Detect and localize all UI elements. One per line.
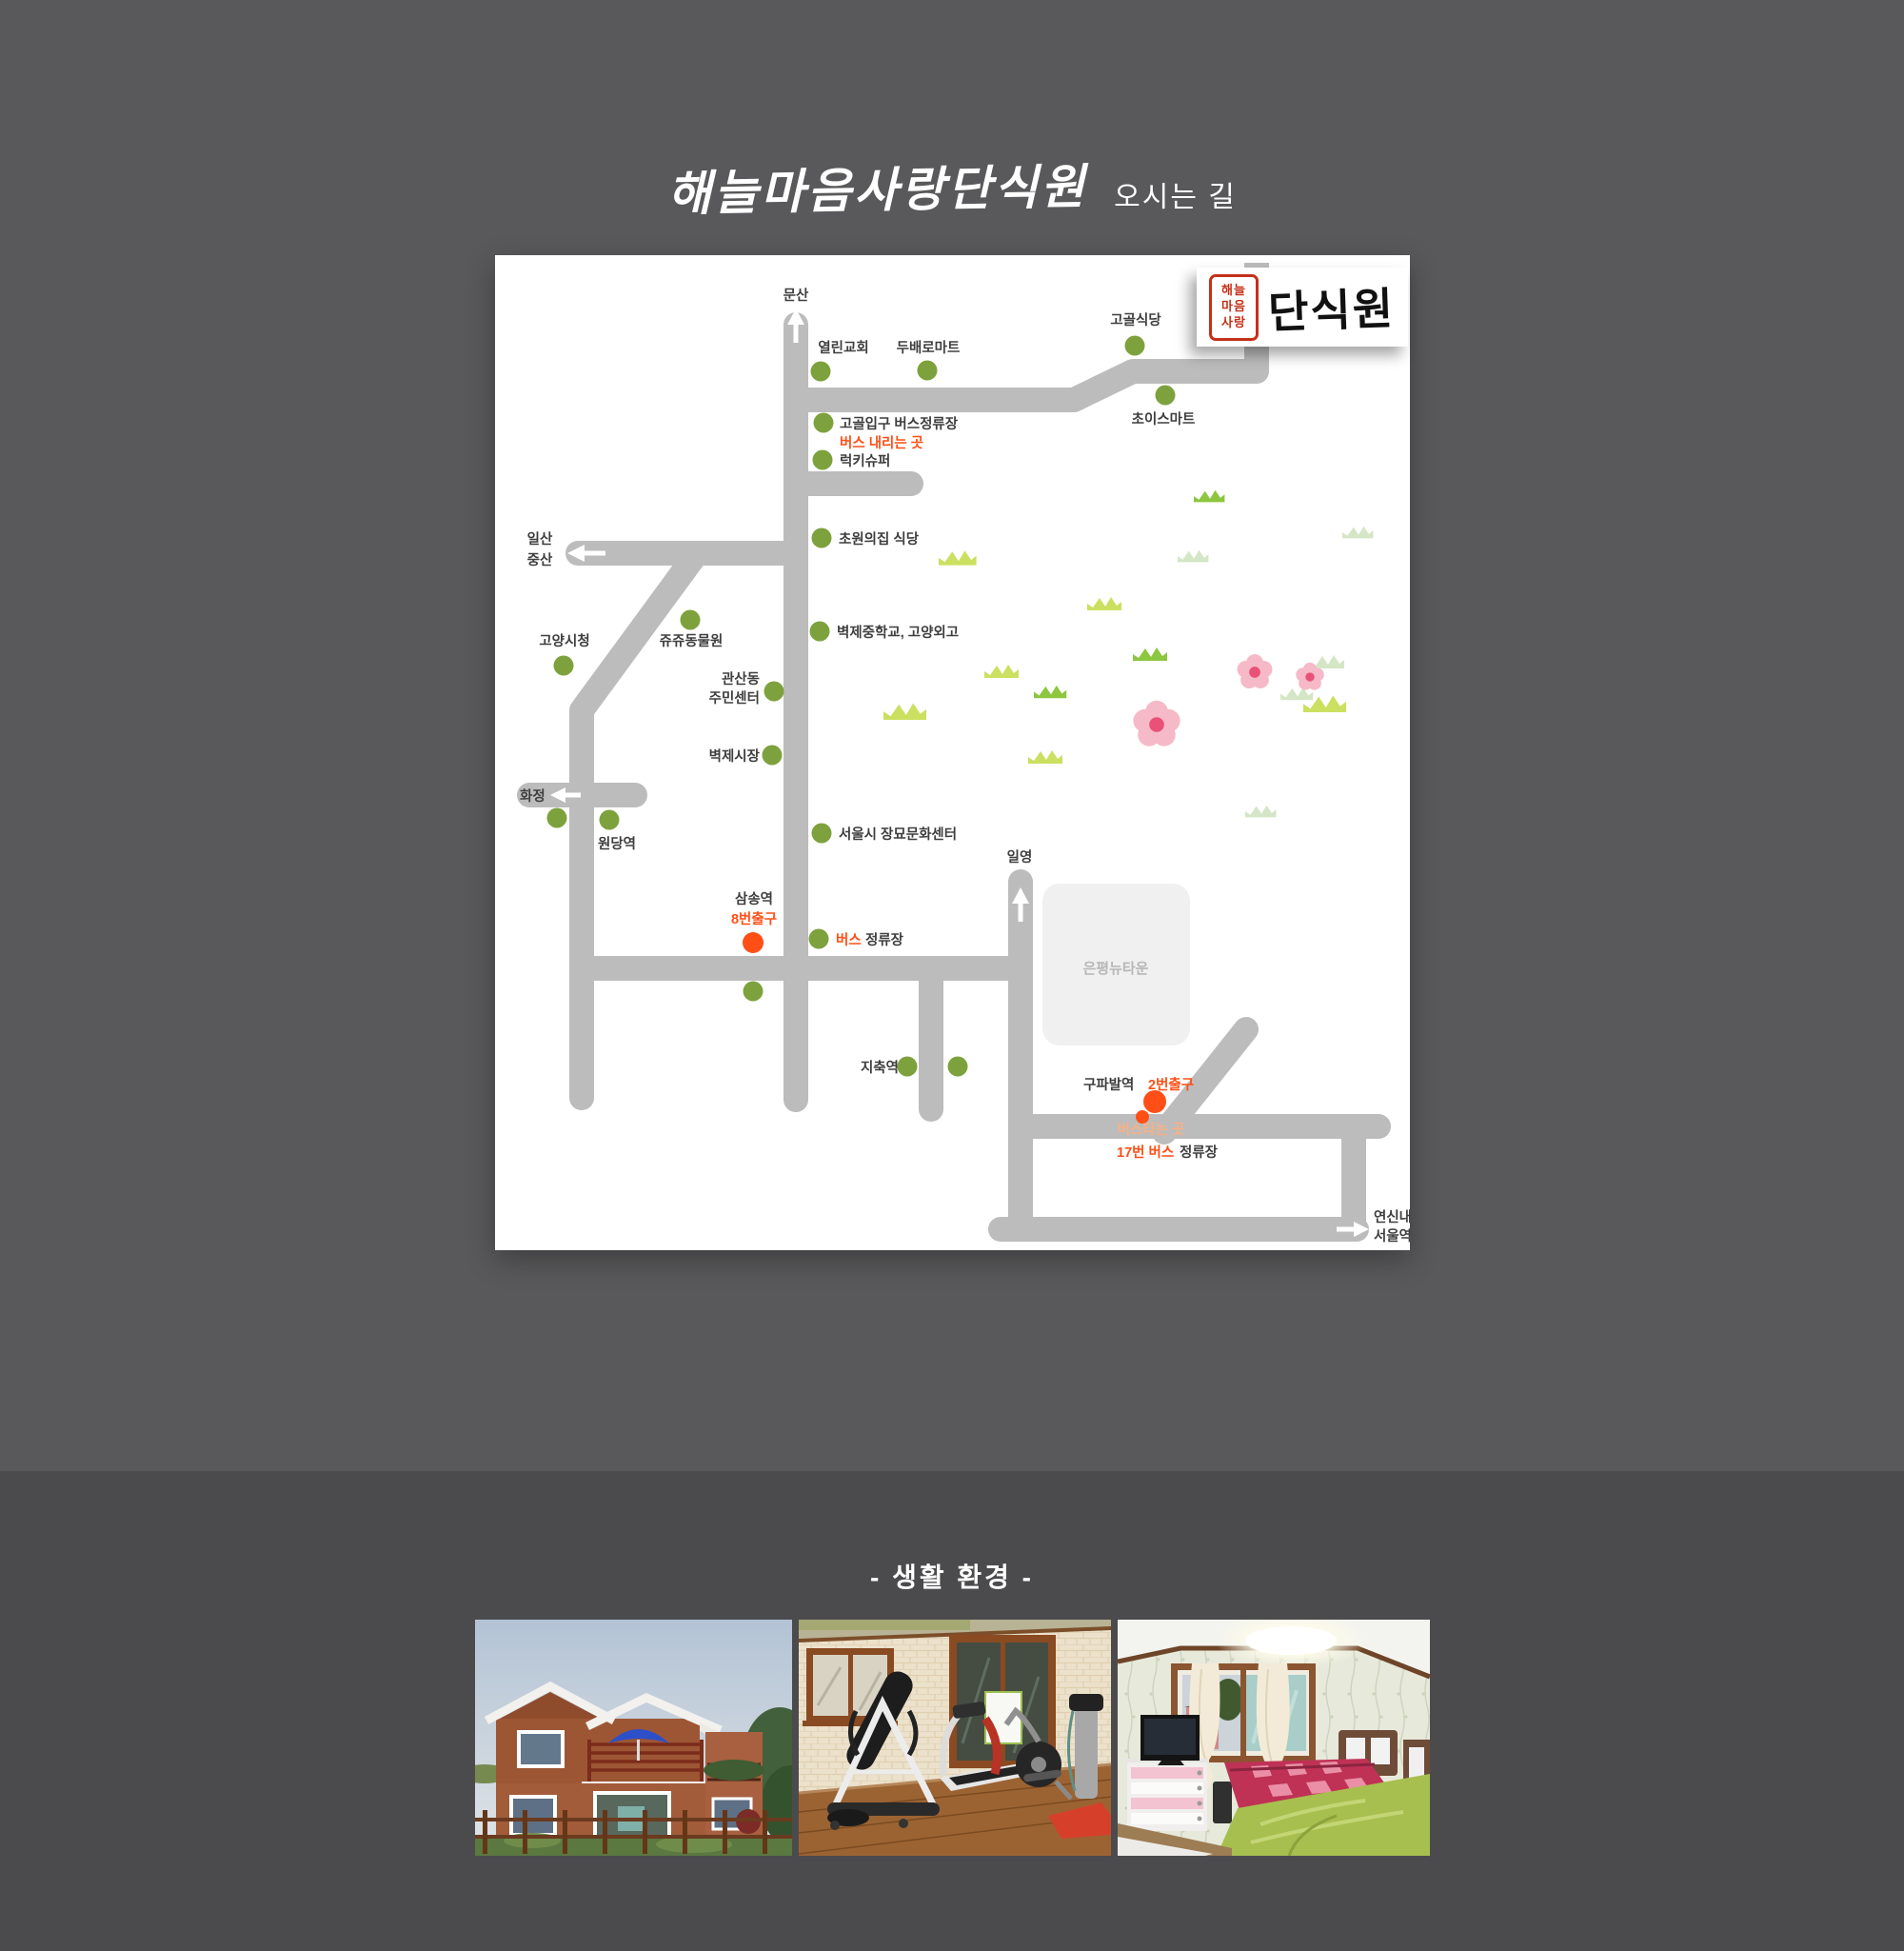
- map-label-munsan: 문산: [783, 288, 808, 304]
- marker-goyang-cityhall: [553, 656, 573, 676]
- directions-map: 은평뉴타운: [495, 255, 1410, 1250]
- map-canvas: 은평뉴타운: [495, 255, 1410, 1250]
- map-label-gupabal-station: 구파발역: [1083, 1077, 1134, 1093]
- map-label-lucky-super: 럭키슈퍼: [840, 452, 890, 469]
- grass-icon: [1194, 490, 1224, 503]
- map-label-jichuk-station: 지축역: [860, 1060, 898, 1076]
- map-label-hwajeong: 화정: [520, 787, 545, 805]
- map-label-bus-board: 버스타는 곳: [1117, 1122, 1184, 1138]
- marker-unlabeled: [743, 982, 763, 1002]
- heater: [1213, 1782, 1232, 1823]
- site-name-calligraphy: 해늘마음사랑단식원: [667, 149, 1088, 225]
- marker-yeollin-church: [810, 362, 830, 382]
- marker-hwajeong: [546, 808, 566, 828]
- map-label-eunpyeong-newtown: 은평뉴타운: [1082, 960, 1148, 977]
- map-label-yeonsinnae: 연신내: [1374, 1209, 1410, 1225]
- map-label-bus17: 17번 버스: [1117, 1145, 1174, 1161]
- seal-line-3: 사랑: [1221, 315, 1246, 331]
- marker-jichuk-left: [897, 1057, 917, 1077]
- map-label-bus-alight: 버스 내리는 곳: [840, 435, 923, 451]
- marker-gwansandong-center: [764, 682, 783, 702]
- map-label-juju-zoo: 쥬쥬동물원: [659, 633, 723, 649]
- grass-icon: [939, 550, 977, 565]
- map-label-bus-word: 버스: [836, 932, 862, 948]
- map-label-jeongryujang: 정류장: [865, 931, 904, 948]
- seal-line-2: 마음: [1221, 299, 1246, 315]
- map-label-jungsan: 중산: [526, 552, 552, 568]
- seal-line-1: 해늘: [1221, 283, 1246, 299]
- marker-jichuk-right: [947, 1057, 967, 1077]
- map-label-jeongryujang2: 정류장: [1180, 1144, 1219, 1161]
- marker-juju-zoo: [680, 610, 700, 630]
- section-title: - 생활 환경 -: [0, 1471, 1904, 1595]
- page-title: 해늘마음사랑단식원 오시는 길: [0, 0, 1904, 221]
- marker-samsong-exit8: [743, 932, 764, 953]
- photo-row: [0, 1620, 1904, 1856]
- road-top-gogol: [796, 263, 1257, 400]
- logo: 해늘 마음 사랑 단식원: [1197, 268, 1408, 347]
- map-label-gupabal-exit: 2번출구: [1148, 1077, 1194, 1093]
- map-label-gogol-sikdang: 고골식당: [1110, 311, 1161, 328]
- flower-icon: [1133, 701, 1180, 747]
- map-label-seoul-station: 서울역: [1374, 1228, 1410, 1244]
- direction-arrows: [550, 309, 1369, 1237]
- roads: [529, 263, 1378, 1229]
- building-exterior-photo: [475, 1620, 792, 1856]
- map-label-wondang-station: 원당역: [597, 835, 635, 852]
- marker-lucky-super: [812, 450, 832, 470]
- grass-icon: [1028, 750, 1062, 764]
- marker-bus-stop: [808, 929, 828, 949]
- page-subtitle: 오시는 길: [1114, 173, 1237, 215]
- flower-icon: [1237, 654, 1272, 688]
- lower-window: [511, 1797, 555, 1835]
- map-labels: 문산 열린교회 두배로마트 고골식당 초이스마트 고골입구 버스정류장 버스 내…: [520, 288, 1410, 1244]
- marker-bus-boarding: [1136, 1110, 1149, 1124]
- grass-icon: [984, 665, 1019, 678]
- marker-gogol-sikdang: [1124, 336, 1144, 356]
- map-label-gogol-bus-stop: 고골입구 버스정류장: [840, 415, 959, 432]
- map-label-jangmyo-center: 서울시 장묘문화센터: [839, 826, 957, 843]
- grass-icon: [1245, 806, 1276, 818]
- grass-icon: [1034, 686, 1066, 698]
- map-label-samsong-station: 삼송역: [734, 891, 772, 907]
- grass-icon: [883, 704, 926, 721]
- map-label-goyang-cityhall: 고양시청: [539, 633, 589, 649]
- grass-icon: [1342, 527, 1373, 539]
- map-label-gwansandong-1: 관산동: [721, 671, 759, 687]
- grass-icon: [1178, 550, 1208, 563]
- exercise-room-photo: [799, 1620, 1111, 1856]
- upper-window: [519, 1732, 563, 1766]
- map-label-byeokje-school: 벽제중학교, 고양외고: [837, 624, 959, 641]
- map-label-byeokje-market: 벽제시장: [708, 747, 760, 765]
- marker-gogol-bus-stop: [813, 413, 833, 433]
- logo-seal: 해늘 마음 사랑: [1209, 274, 1259, 341]
- directions-section: 해늘마음사랑단식원 오시는 길: [0, 0, 1904, 1471]
- grass-icon: [1087, 597, 1121, 610]
- flower-icons: [1133, 654, 1323, 747]
- map-label-ilyeong: 일영: [1006, 848, 1032, 866]
- map-label-samsong-exit: 8번출구: [730, 911, 776, 927]
- marker-jangmyo-center: [811, 824, 831, 844]
- map-label-chowon-sikdang: 초원의집 식당: [839, 530, 920, 547]
- marker-choice-mart: [1155, 386, 1175, 406]
- marker-chowon-sikdang: [811, 528, 831, 548]
- page: 해늘마음사랑단식원 오시는 길: [0, 0, 1904, 1951]
- map-label-gwansandong-2: 주민센터: [708, 690, 759, 707]
- marker-gupabal-exit2: [1143, 1090, 1166, 1113]
- marker-byeokje-school: [809, 622, 829, 642]
- logo-name: 단식원: [1267, 273, 1396, 341]
- ceiling-light: [1245, 1626, 1337, 1655]
- living-environment-section: - 생활 환경 -: [0, 1471, 1904, 1951]
- grass-icons: [883, 490, 1373, 818]
- map-label-choice-mart: 초이스마트: [1131, 411, 1195, 428]
- map-label-yeollin-church: 열린교회: [818, 339, 868, 356]
- bedroom-photo: [1118, 1620, 1430, 1856]
- marker-byeokje-market: [762, 746, 782, 766]
- marker-wondang-station: [599, 810, 619, 830]
- marker-dubae-mart: [917, 361, 937, 381]
- map-label-ilsan: 일산: [526, 531, 552, 547]
- map-label-dubae-mart: 두배로마트: [896, 340, 960, 356]
- grass-icon: [1133, 647, 1167, 661]
